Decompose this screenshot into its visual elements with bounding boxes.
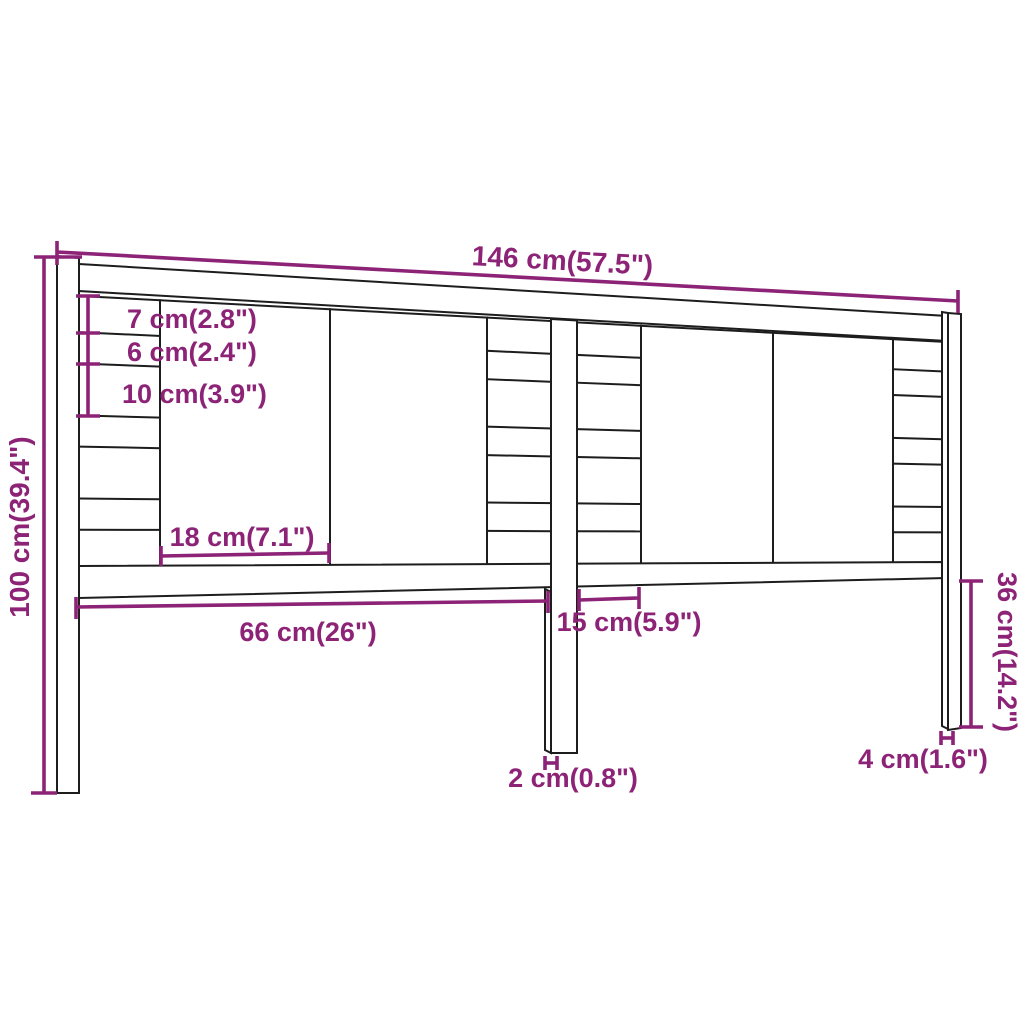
dim-leg-height bbox=[959, 581, 983, 727]
right-post-front-face bbox=[948, 313, 961, 730]
center-leg bbox=[545, 319, 577, 753]
dim-top-slat-label: 7 cm(2.8") bbox=[127, 304, 257, 334]
right-post bbox=[942, 312, 961, 730]
dim-center-span-label: 15 cm(5.9") bbox=[557, 607, 702, 637]
center-leg-front-face bbox=[551, 319, 577, 753]
left-post bbox=[57, 256, 79, 793]
dim-leg-thickness-label: 2 cm(0.8") bbox=[508, 763, 638, 793]
diagram-canvas: 146 cm(57.5") 100 cm(39.4") 7 cm(2.8") 6… bbox=[0, 0, 1024, 1024]
dim-panel-width-label: 18 cm(7.1") bbox=[170, 522, 315, 552]
dim-total-height-label: 100 cm(39.4") bbox=[4, 436, 35, 617]
slat-column-4 bbox=[893, 369, 946, 532]
slat-column-2 bbox=[487, 351, 552, 531]
dim-slat-gap-label: 6 cm(2.4") bbox=[127, 337, 257, 367]
dim-leg-width bbox=[941, 731, 953, 745]
headboard-dimension-diagram: 146 cm(57.5") 100 cm(39.4") 7 cm(2.8") 6… bbox=[0, 0, 1024, 1024]
slat-column-3 bbox=[577, 355, 641, 532]
bottom-rail bbox=[79, 562, 946, 598]
dim-left-span-label: 66 cm(26") bbox=[239, 617, 376, 647]
dim-leg-height-label: 36 cm(14.2") bbox=[992, 572, 1022, 732]
dim-wide-slat-label: 10 cm(3.9") bbox=[122, 379, 267, 409]
dim-leg-width-label: 4 cm(1.6") bbox=[858, 744, 988, 774]
